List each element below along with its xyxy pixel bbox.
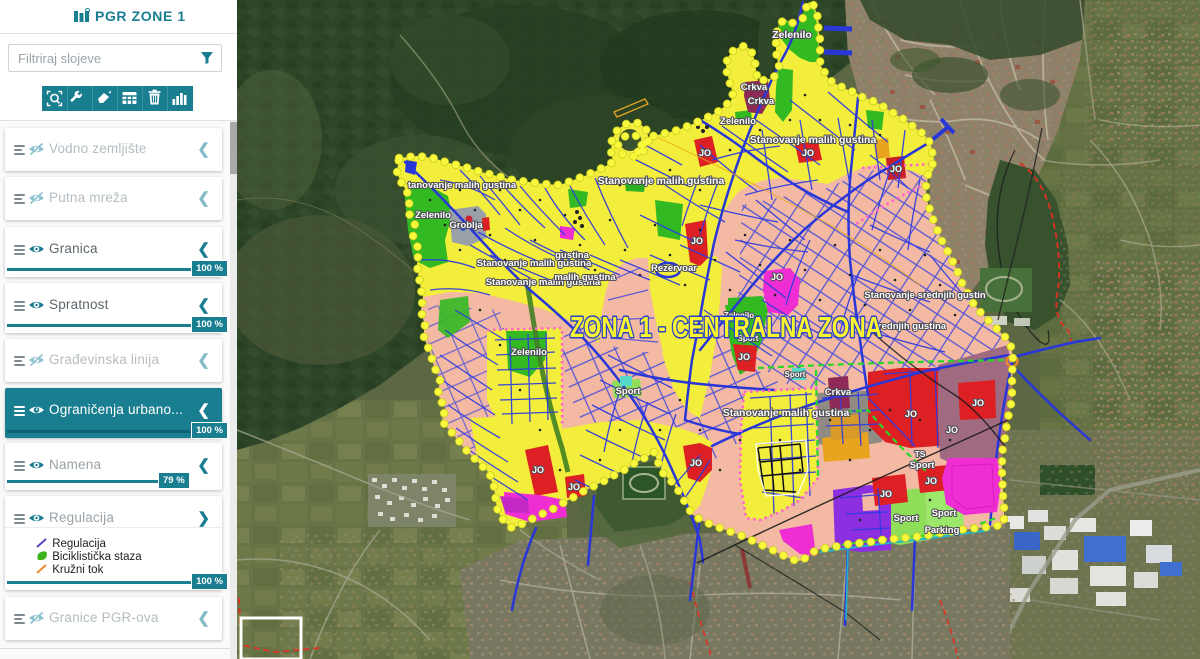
svg-text:tanovanje malih gustina: tanovanje malih gustina [408,180,517,191]
svg-text:Crkva: Crkva [825,387,852,398]
svg-text:JO: JO [532,465,544,475]
svg-text:Stanovanje malih gustina: Stanovanje malih gustina [598,175,725,187]
svg-text:Stanovanje srednjih gustin: Stanovanje srednjih gustin [864,290,986,301]
svg-text:JO: JO [738,352,750,362]
svg-text:Parking: Parking [925,525,960,536]
svg-text:Sport: Sport [785,370,806,379]
svg-text:JO: JO [690,458,702,468]
svg-text:JO: JO [925,476,937,486]
svg-text:TS: TS [915,449,926,459]
svg-text:Sport: Sport [616,386,642,397]
svg-text:JO: JO [890,164,902,174]
svg-text:Sport: Sport [910,460,936,471]
svg-text:malih gustina: malih gustina [554,272,616,283]
svg-text:JO: JO [691,236,703,246]
svg-text:JO: JO [905,409,917,419]
svg-text:Zelenilo: Zelenilo [415,210,451,221]
svg-text:JO: JO [972,398,984,408]
svg-text:Zelenilo: Zelenilo [772,29,812,41]
svg-text:Rezervoar: Rezervoar [651,263,697,274]
svg-text:ZONA 1 - CENTRALNA ZONA: ZONA 1 - CENTRALNA ZONA [570,312,882,344]
svg-text:Sport: Sport [894,513,920,524]
svg-text:Sport: Sport [932,508,958,519]
svg-text:JO: JO [946,425,958,435]
svg-text:Crkva: Crkva [741,82,768,93]
svg-text:JO: JO [880,489,892,499]
svg-text:rednjih gustina: rednjih gustina [878,321,947,332]
svg-text:JO: JO [568,482,580,492]
svg-text:gustina: gustina [555,250,589,261]
svg-text:Zelenilo: Zelenilo [511,347,547,358]
svg-text:Crkva: Crkva [748,96,775,107]
svg-text:JO: JO [802,148,814,158]
svg-text:Groblja: Groblja [449,220,483,231]
svg-text:Stanovanje malih gustina: Stanovanje malih gustina [723,407,850,419]
svg-text:JO: JO [699,148,711,158]
svg-text:Stanovanje malih gustina: Stanovanje malih gustina [750,134,877,146]
svg-text:JO: JO [771,272,783,282]
svg-text:Zelenilo: Zelenilo [720,116,756,127]
